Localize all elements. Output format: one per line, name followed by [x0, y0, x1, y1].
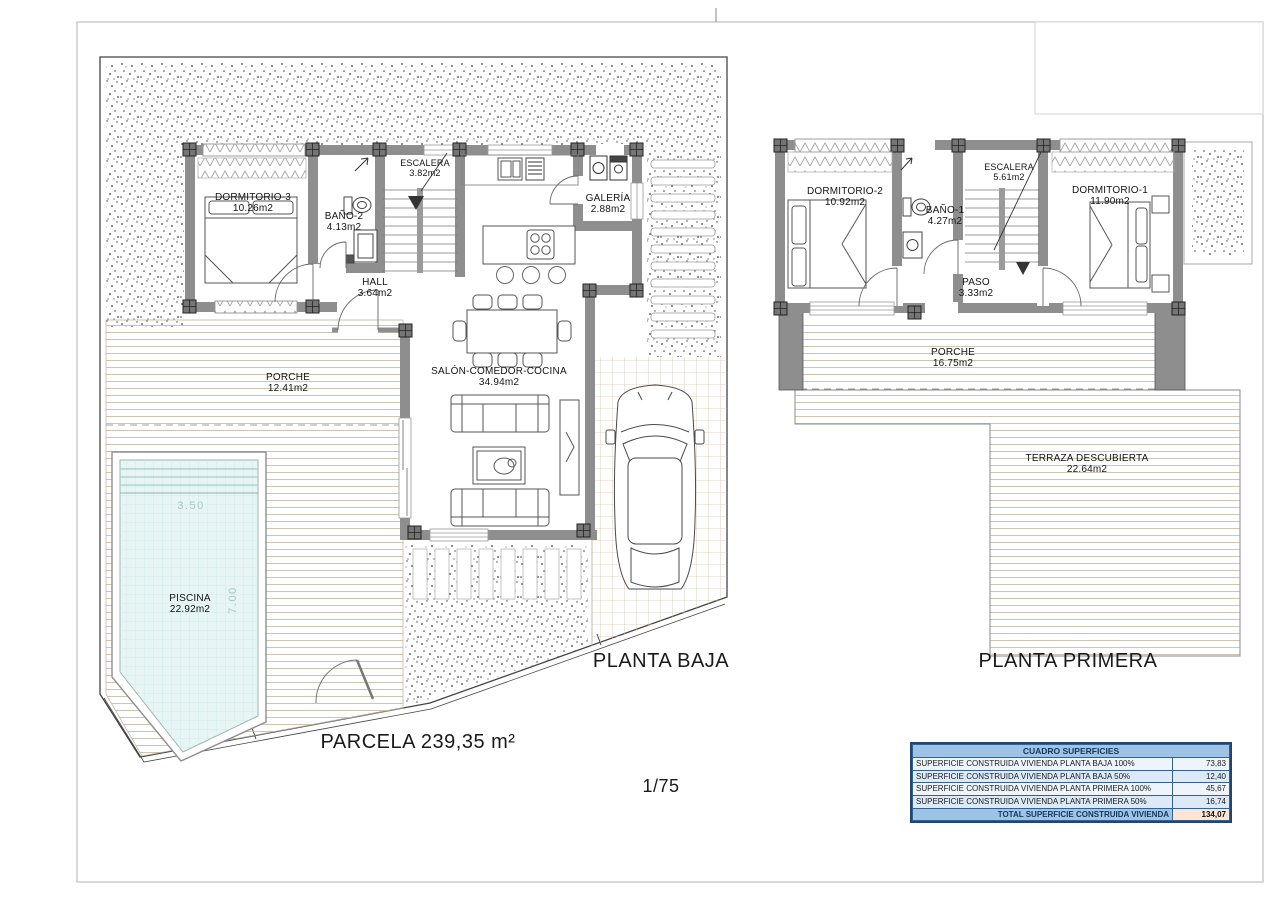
room-label-dormitorio-2: DORMITORIO-2 10.92m2: [807, 186, 883, 208]
floor-title-planta-baja: PLANTA BAJA: [593, 650, 729, 672]
table-row: SUPERFICIE CONSTRUIDA VIVIENDA PLANTA BA…: [913, 770, 1230, 783]
total-value: 134,07: [1173, 808, 1230, 821]
row-label: SUPERFICIE CONSTRUIDA VIVIENDA PLANTA BA…: [913, 770, 1173, 783]
pool-length-dimension: 7.00: [227, 586, 239, 613]
surfaces-table-title: CUADRO SUPERFICIES: [913, 745, 1230, 758]
room-label-porche-primera: PORCHE 16.75m2: [931, 347, 975, 369]
room-label-hall: HALL 3.64m2: [358, 277, 393, 299]
row-value: 12,40: [1173, 770, 1230, 783]
row-value: 45,67: [1173, 783, 1230, 796]
table-total-row: TOTAL SUPERFICIE CONSTRUIDA VIVIENDA 134…: [913, 808, 1230, 821]
wardrobe-dormitorio-3: [198, 158, 306, 178]
surfaces-table-header: CUADRO SUPERFICIES: [913, 745, 1230, 758]
floor-title-planta-primera: PLANTA PRIMERA: [979, 650, 1158, 672]
row-label: SUPERFICIE CONSTRUIDA VIVIENDA PLANTA BA…: [913, 758, 1173, 771]
room-label-bano-1: BAÑO-1 4.27m2: [926, 205, 964, 227]
total-label: TOTAL SUPERFICIE CONSTRUIDA VIVIENDA: [913, 808, 1173, 821]
room-label-galeria: GALERÍA 2.88m2: [586, 193, 631, 215]
room-label-porche-baja: PORCHE 12.41m2: [266, 372, 310, 394]
drawing-scale: 1/75: [642, 776, 679, 796]
pool-width-dimension: 3.50: [177, 500, 204, 512]
row-label: SUPERFICIE CONSTRUIDA VIVIENDA PLANTA PR…: [913, 795, 1173, 808]
title-box: [1035, 22, 1263, 114]
table-row: SUPERFICIE CONSTRUIDA VIVIENDA PLANTA BA…: [913, 758, 1230, 771]
table-row: SUPERFICIE CONSTRUIDA VIVIENDA PLANTA PR…: [913, 795, 1230, 808]
porch-deck-primera: [800, 322, 1156, 389]
table-row: SUPERFICIE CONSTRUIDA VIVIENDA PLANTA PR…: [913, 783, 1230, 796]
row-label: SUPERFICIE CONSTRUIDA VIVIENDA PLANTA PR…: [913, 783, 1173, 796]
wardrobe-dormitorio-2: [788, 152, 892, 172]
bed-dormitorio-2: [788, 200, 866, 288]
room-label-escalera-primera: ESCALERA 5.61m2: [984, 162, 1034, 182]
room-label-piscina: PISCINA 22.92m2: [169, 593, 210, 615]
wardrobe-dormitorio-1: [1052, 152, 1174, 172]
balcony: [1184, 142, 1252, 264]
drawing-sheet: DORMITORIO-3 10.26m2 BAÑO-2 4.13m2 ESCAL…: [0, 0, 1280, 905]
tv-unit: [560, 400, 579, 495]
room-label-dormitorio-1: DORMITORIO-1 11.90m2: [1072, 185, 1148, 207]
room-label-bano-2: BAÑO-2 4.13m2: [325, 211, 363, 233]
room-label-paso: PASO 3.33m2: [959, 277, 994, 299]
room-label-terraza-descubierta: TERRAZA DESCUBIERTA 22.64m2: [1026, 453, 1149, 475]
room-label-salon-comedor-cocina: SALÓN-COMEDOR-COCINA 34.94m2: [431, 366, 567, 388]
room-label-dormitorio-3: DORMITORIO-3 10.26m2: [215, 192, 291, 214]
surfaces-table: CUADRO SUPERFICIES SUPERFICIE CONSTRUIDA…: [910, 742, 1232, 823]
room-label-escalera-baja: ESCALERA 3.82m2: [400, 158, 450, 178]
parcel-area-label: PARCELA 239,35 m²: [321, 731, 516, 753]
row-value: 73,83: [1173, 758, 1230, 771]
row-value: 16,74: [1173, 795, 1230, 808]
car: [606, 385, 704, 589]
